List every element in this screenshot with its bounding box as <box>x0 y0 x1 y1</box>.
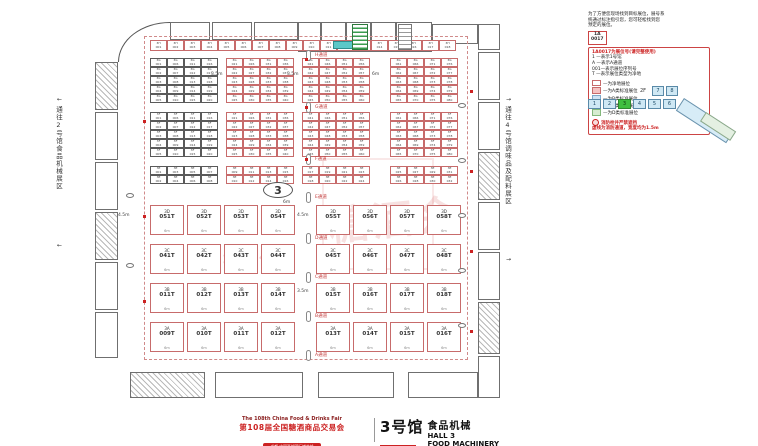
booth[interactable]: 3F072 <box>424 121 441 130</box>
booth[interactable]: 3F017 <box>201 121 218 130</box>
booth[interactable]: 3A011T6m <box>224 322 258 352</box>
dimension-label: 3.5m <box>297 289 309 294</box>
fire-hydrant-marker <box>470 250 473 253</box>
footer: The 108th China Food & Drinks Fair 第108届… <box>214 416 514 444</box>
booth[interactable]: 3F048 <box>319 130 336 139</box>
booth[interactable]: 3F075 <box>424 148 441 157</box>
booth[interactable]: 3D055T6m <box>316 205 350 235</box>
booth[interactable]: 3F008 <box>167 130 184 139</box>
booth[interactable]: 3F057 <box>353 121 370 130</box>
booth[interactable]: 3F073 <box>424 130 441 139</box>
booth[interactable]: 3B011T6m <box>150 283 184 313</box>
booth[interactable]: 3F055 <box>336 148 353 157</box>
booth[interactable]: 3A016T6m <box>427 322 461 352</box>
booth[interactable]: 3F028 <box>243 130 260 139</box>
wall-room <box>478 52 500 100</box>
booth[interactable]: 3G031 <box>260 58 277 67</box>
booth[interactable]: 3G062 <box>390 67 407 76</box>
booth[interactable]: 3G032 <box>260 67 277 76</box>
booth[interactable]: 3F018 <box>201 130 218 139</box>
booth[interactable]: 3G002 <box>150 67 167 76</box>
booth[interactable]: 3G078 <box>441 76 458 85</box>
booth[interactable]: 3C045T6m <box>316 244 350 274</box>
booth[interactable]: 3G033 <box>260 76 277 85</box>
wall-room <box>478 302 500 354</box>
booth[interactable]: 3G019 <box>201 85 218 94</box>
booth[interactable]: 3F013 <box>184 130 201 139</box>
booth[interactable]: 3F007 <box>167 121 184 130</box>
booth[interactable]: 3G024 <box>226 85 243 94</box>
booth[interactable]: 3F069 <box>407 139 424 148</box>
aisle-label: E通道 <box>315 194 327 200</box>
booth[interactable]: 3G071 <box>424 58 441 67</box>
booth[interactable]: 3A015T6m <box>390 322 424 352</box>
fire-hydrant-marker <box>305 58 308 61</box>
booth[interactable]: 3G009 <box>167 85 184 94</box>
booth[interactable]: 3G058 <box>353 76 370 85</box>
booth[interactable]: 3F022 <box>226 121 243 130</box>
left-arrow-top-icon: ← <box>57 96 62 103</box>
column-marker <box>458 213 466 218</box>
booth[interactable]: 3G054 <box>336 85 353 94</box>
aisle-label: B通道 <box>315 313 327 319</box>
booth[interactable]: 3D058T6m <box>427 205 461 235</box>
wall-room <box>95 62 118 110</box>
booth[interactable]: 3E028 <box>407 175 424 184</box>
booth[interactable]: 3A009T6m <box>150 322 184 352</box>
booth[interactable]: 3G004 <box>150 85 167 94</box>
booth[interactable]: 3G003 <box>150 76 167 85</box>
booth[interactable]: 3F031 <box>260 112 277 121</box>
booth[interactable]: 3F039 <box>277 139 294 148</box>
booth[interactable]: 3F066 <box>407 112 424 121</box>
aisle-label: A通道 <box>315 352 327 358</box>
booth[interactable]: 3G022 <box>226 67 243 76</box>
hall-number: 3 <box>274 184 282 197</box>
booth[interactable]: 3G063 <box>390 76 407 85</box>
fire-hydrant-marker <box>143 300 146 303</box>
booth[interactable]: 3C048T6m <box>427 244 461 274</box>
booth[interactable]: 3H010 <box>303 40 320 51</box>
booth[interactable]: 3G014 <box>184 85 201 94</box>
booth[interactable]: 3D052T6m <box>187 205 221 235</box>
booth[interactable]: 3G018 <box>201 76 218 85</box>
booth[interactable]: 3E001 <box>150 166 167 175</box>
booth[interactable]: 3E015 <box>277 166 294 175</box>
booth[interactable]: 3C042T6m <box>187 244 221 274</box>
fire-hydrant-marker <box>305 158 308 161</box>
booth[interactable]: 3F001 <box>150 112 167 121</box>
booth[interactable]: 3F038 <box>277 130 294 139</box>
booth[interactable]: 3C047T6m <box>390 244 424 274</box>
left-corridor-label: 通往2号馆食品机械展区 <box>55 106 62 190</box>
booth[interactable]: 3E030 <box>424 175 441 184</box>
booth[interactable]: 3G048 <box>319 76 336 85</box>
booth[interactable]: 3F037 <box>277 121 294 130</box>
booth[interactable]: 3G070 <box>407 94 424 103</box>
booth[interactable]: 3E024 <box>353 175 370 184</box>
dimension-label: 3.5m <box>211 72 223 77</box>
booth[interactable]: 3F009 <box>167 139 184 148</box>
booth[interactable]: 3G039 <box>277 85 294 94</box>
booth[interactable]: 3G044 <box>302 85 319 94</box>
booth[interactable]: 3E007 <box>201 166 218 175</box>
booth[interactable]: 3F049 <box>319 139 336 148</box>
booth[interactable]: 3G053 <box>336 76 353 85</box>
hall-title-en: HALL 3 <box>427 432 499 440</box>
booth[interactable]: 3F030 <box>243 148 260 157</box>
booth[interactable]: 3G036 <box>277 58 294 67</box>
aisle-marker <box>306 192 311 203</box>
booth[interactable]: 3F063 <box>390 130 407 139</box>
booth[interactable]: 3E022 <box>336 175 353 184</box>
booth[interactable]: 3G057 <box>353 67 370 76</box>
right-corridor-label: 通往4号馆调味品及配料展区 <box>504 106 511 205</box>
booth[interactable]: 3H007 <box>252 40 269 51</box>
booth[interactable]: 3E032 <box>441 175 458 184</box>
booth[interactable]: 3A010T6m <box>187 322 221 352</box>
minimap-tab-hall-5[interactable]: 5 <box>648 99 661 109</box>
booth[interactable]: 3F033 <box>260 130 277 139</box>
booth[interactable]: 3G055 <box>336 94 353 103</box>
booth[interactable]: 3F060 <box>353 148 370 157</box>
booth[interactable]: 3D056T6m <box>353 205 387 235</box>
booth[interactable]: 3F062 <box>390 121 407 130</box>
booth[interactable]: 3H006 <box>235 40 252 51</box>
booth[interactable]: 3E002 <box>150 175 167 184</box>
wall-room <box>478 202 500 250</box>
booth[interactable]: 3F044 <box>302 139 319 148</box>
booth[interactable]: 3G011 <box>184 58 201 67</box>
legend-code-line: T —表示展位类型为净地 <box>592 72 706 78</box>
booth[interactable]: 3F058 <box>353 130 370 139</box>
wall-room <box>130 372 205 398</box>
booth[interactable]: 3G021 <box>226 58 243 67</box>
booth[interactable]: 3F036 <box>277 112 294 121</box>
minimap-tab-hall-1[interactable]: 1 <box>588 99 601 109</box>
booth[interactable]: 3B016T6m <box>353 283 387 313</box>
booth[interactable]: 3F046 <box>319 112 336 121</box>
booth[interactable]: 3F005 <box>150 148 167 157</box>
booth[interactable]: 3F041 <box>302 112 319 121</box>
booth[interactable]: 3G026 <box>243 58 260 67</box>
booth[interactable]: 3E004 <box>167 175 184 184</box>
booth[interactable]: 3E027 <box>407 166 424 175</box>
booth[interactable]: 3F068 <box>407 130 424 139</box>
booth[interactable]: 3F080 <box>441 148 458 157</box>
booth[interactable]: 3F061 <box>390 112 407 121</box>
booth[interactable]: 3F011 <box>184 112 201 121</box>
booth[interactable]: 3F010 <box>167 148 184 157</box>
booth[interactable]: 3G043 <box>302 76 319 85</box>
booth[interactable]: 3E018 <box>302 175 319 184</box>
booth[interactable]: 3F024 <box>226 139 243 148</box>
booth[interactable]: 3F056 <box>353 112 370 121</box>
booth[interactable]: 3F065 <box>390 148 407 157</box>
booth[interactable]: 3H018 <box>439 40 456 51</box>
booth[interactable]: 3E031 <box>441 166 458 175</box>
booth[interactable]: 3G023 <box>226 76 243 85</box>
booth[interactable]: 3F034 <box>260 139 277 148</box>
booth[interactable]: 3G072 <box>424 67 441 76</box>
booth[interactable]: 3F076 <box>441 112 458 121</box>
hall-category: 食品机械 <box>427 417 499 432</box>
booth[interactable]: 3G064 <box>390 85 407 94</box>
booth[interactable]: 3G068 <box>407 76 424 85</box>
floor-plan-page: 糖酒会 净地展位图 3H0013H0023H0033H0043H0053H006… <box>0 0 758 446</box>
wall-room <box>318 372 394 398</box>
booth[interactable]: 3F064 <box>390 139 407 148</box>
booth[interactable]: 3G005 <box>150 94 167 103</box>
booth[interactable]: 3G052 <box>336 67 353 76</box>
aisle-label: C通道 <box>315 274 327 280</box>
fire-hydrant-marker <box>143 215 146 218</box>
fire-hydrant-marker <box>470 90 473 93</box>
booth[interactable]: 3G027 <box>243 67 260 76</box>
booth[interactable]: 3G075 <box>424 94 441 103</box>
wall-room <box>95 162 118 210</box>
dimension-label: 6m <box>283 200 290 205</box>
booth[interactable]: 3F077 <box>441 121 458 130</box>
booth[interactable]: 3C041T6m <box>150 244 184 274</box>
booth[interactable]: 3G045 <box>302 94 319 103</box>
aisle-label: G通道 <box>315 104 328 110</box>
booth[interactable]: 3H008 <box>269 40 286 51</box>
booth[interactable]: 3F051 <box>336 112 353 121</box>
booth[interactable]: 3G049 <box>319 85 336 94</box>
booth[interactable]: 3F015 <box>184 148 201 157</box>
minimap-tab-hall-6[interactable]: 6 <box>663 99 676 109</box>
booth[interactable]: 3F004 <box>150 139 167 148</box>
wall-room <box>478 24 500 50</box>
booth[interactable]: 3H005 <box>218 40 235 51</box>
booth[interactable]: 3G006 <box>167 58 184 67</box>
booth[interactable]: 3G056 <box>353 58 370 67</box>
booth[interactable]: 3G077 <box>441 67 458 76</box>
stairs-icon <box>398 24 412 50</box>
minimap-floor2-label: 2F <box>640 88 646 94</box>
aisle-label: D通道 <box>315 235 327 241</box>
booth[interactable]: 3G029 <box>243 85 260 94</box>
booth[interactable]: 3G001 <box>150 58 167 67</box>
booth[interactable]: 3E003 <box>167 166 184 175</box>
booth[interactable]: 3E021 <box>336 166 353 175</box>
booth[interactable]: 3F047 <box>319 121 336 130</box>
booth[interactable]: 3G010 <box>167 94 184 103</box>
booth[interactable]: 3F021 <box>226 112 243 121</box>
column-marker <box>458 103 466 108</box>
booth[interactable]: 3F003 <box>150 130 167 139</box>
booth[interactable]: 3G025 <box>226 94 243 103</box>
dimension-label: 4.5m <box>297 213 309 218</box>
aisle-marker <box>306 272 311 283</box>
booth[interactable]: 3G015 <box>184 94 201 103</box>
booth[interactable]: 3F032 <box>260 121 277 130</box>
info-counter <box>333 41 353 49</box>
booth[interactable]: 3H003 <box>184 40 201 51</box>
booth[interactable]: 3F042 <box>302 121 319 130</box>
wall-room <box>478 152 500 200</box>
booth[interactable]: 3B018T6m <box>427 283 461 313</box>
booth[interactable]: 3A012T6m <box>261 322 295 352</box>
aisle-label: H通道 <box>315 52 327 58</box>
booth[interactable]: 3H017 <box>422 40 439 51</box>
booth[interactable]: 3G061 <box>390 58 407 67</box>
aisle-marker <box>306 350 311 361</box>
booth[interactable]: 3G030 <box>243 94 260 103</box>
booth[interactable]: 3D053T6m <box>224 205 258 235</box>
booth[interactable]: 3E010 <box>226 175 243 184</box>
booth[interactable]: 3C043T6m <box>224 244 258 274</box>
booth[interactable]: 3G069 <box>407 85 424 94</box>
booth[interactable]: 3C044T6m <box>261 244 295 274</box>
booth[interactable]: 3G060 <box>353 94 370 103</box>
booth[interactable]: 3F053 <box>336 130 353 139</box>
booth[interactable]: 3F070 <box>407 148 424 157</box>
wall-room <box>95 262 118 310</box>
booth[interactable]: 3F023 <box>226 130 243 139</box>
dimension-label: 3.5m <box>287 72 299 77</box>
booth[interactable]: 3D057T6m <box>390 205 424 235</box>
fire-hydrant-marker <box>305 106 308 109</box>
booth[interactable]: 3G073 <box>424 76 441 85</box>
booth[interactable]: 3E020 <box>319 175 336 184</box>
minimap-tab-hall-7[interactable]: 7 <box>652 86 664 96</box>
booth[interactable]: 3F074 <box>424 139 441 148</box>
booth[interactable]: 3E029 <box>424 166 441 175</box>
booth[interactable]: 3G035 <box>260 94 277 103</box>
legend-intro-line3: 预定的展位。 <box>588 23 710 29</box>
booth[interactable]: 3D051T6m <box>150 205 184 235</box>
booth[interactable]: 3G076 <box>441 58 458 67</box>
hall-title-cn: 3号馆 <box>380 416 423 437</box>
wall-room <box>95 212 118 260</box>
booth[interactable]: 3G051 <box>336 58 353 67</box>
booth[interactable]: 3F035 <box>260 148 277 157</box>
booth[interactable]: 3G020 <box>201 94 218 103</box>
booth[interactable]: 3F059 <box>353 139 370 148</box>
right-arrow-top-icon: → <box>506 96 511 103</box>
booth[interactable]: 3E025 <box>390 166 407 175</box>
booth[interactable]: 3B012T6m <box>187 283 221 313</box>
booth[interactable]: 3F054 <box>336 139 353 148</box>
minimap: 2F 78 123456 <box>588 86 753 146</box>
booth[interactable]: 3H001 <box>150 40 167 51</box>
column-marker <box>458 158 466 163</box>
booth[interactable]: 3F002 <box>150 121 167 130</box>
booth[interactable]: 3F027 <box>243 121 260 130</box>
footer-divider <box>374 418 375 442</box>
booth[interactable]: 3F029 <box>243 139 260 148</box>
booth[interactable]: 3E026 <box>390 175 407 184</box>
booth[interactable]: 3A014T6m <box>353 322 387 352</box>
booth[interactable]: 3G079 <box>441 85 458 94</box>
booth[interactable]: 3E005 <box>184 166 201 175</box>
booth[interactable]: 3E019 <box>319 166 336 175</box>
wall-room <box>95 112 118 160</box>
booth[interactable]: 3E013 <box>260 166 277 175</box>
booth[interactable]: 3F019 <box>201 139 218 148</box>
booth[interactable]: 3G047 <box>319 67 336 76</box>
booth[interactable]: 3F071 <box>424 112 441 121</box>
hall-title-en2: FOOD MACHINERY <box>427 440 499 446</box>
booth[interactable]: 3B014T6m <box>261 283 295 313</box>
booth[interactable]: 3F040 <box>277 148 294 157</box>
booth[interactable]: 3F026 <box>243 112 260 121</box>
booth[interactable]: 3F043 <box>302 130 319 139</box>
booth[interactable]: 3E008 <box>201 175 218 184</box>
booth[interactable]: 3F020 <box>201 148 218 157</box>
booth[interactable]: 3C046T6m <box>353 244 387 274</box>
booth[interactable]: 3G012 <box>184 67 201 76</box>
booth[interactable]: 3F016 <box>201 112 218 121</box>
booth[interactable]: 3H014 <box>371 40 388 51</box>
booth[interactable]: 3F078 <box>441 130 458 139</box>
booth[interactable]: 3E023 <box>353 166 370 175</box>
booth[interactable]: 3B017T6m <box>390 283 424 313</box>
booth[interactable]: 3G042 <box>302 67 319 76</box>
booth[interactable]: 3G028 <box>243 76 260 85</box>
booth[interactable]: 3G066 <box>407 58 424 67</box>
minimap-tab-hall-8[interactable]: 8 <box>666 86 678 96</box>
left-arrow-bottom-icon: ← <box>57 242 62 249</box>
booth[interactable]: 3G065 <box>390 94 407 103</box>
minimap-tab-hall-3[interactable]: 3 <box>618 99 631 109</box>
booth[interactable]: 3G074 <box>424 85 441 94</box>
minimap-tab-hall-4[interactable]: 4 <box>633 99 646 109</box>
booth[interactable]: 3G038 <box>277 76 294 85</box>
booth[interactable]: 3G040 <box>277 94 294 103</box>
booth[interactable]: 3B013T6m <box>224 283 258 313</box>
minimap-tab-hall-2[interactable]: 2 <box>603 99 616 109</box>
booth[interactable]: 3E009 <box>226 166 243 175</box>
sample-booth-bottom: 0017 <box>591 37 604 42</box>
booth[interactable]: 3G050 <box>319 94 336 103</box>
booth[interactable]: 3F014 <box>184 139 201 148</box>
booth[interactable]: 3E017 <box>302 166 319 175</box>
booth[interactable]: 3F006 <box>167 112 184 121</box>
booth[interactable]: 3E012 <box>243 175 260 184</box>
booth[interactable]: 3E011 <box>243 166 260 175</box>
booth[interactable]: 3D054T6m <box>261 205 295 235</box>
booth[interactable]: 3H009 <box>286 40 303 51</box>
booth[interactable]: 3F067 <box>407 121 424 130</box>
column-marker <box>458 268 466 273</box>
fair-title-cn: 第108届全国糖酒商品交易会 <box>214 422 370 433</box>
booth[interactable]: 3G080 <box>441 94 458 103</box>
booth[interactable]: 3H004 <box>201 40 218 51</box>
fire-hydrant-marker <box>470 170 473 173</box>
booth[interactable]: 3F012 <box>184 121 201 130</box>
booth[interactable]: 3G008 <box>167 76 184 85</box>
booth[interactable]: 3E006 <box>184 175 201 184</box>
right-arrow-bottom-icon: → <box>506 256 511 263</box>
booth[interactable]: 3B015T6m <box>316 283 350 313</box>
booth[interactable]: 3F052 <box>336 121 353 130</box>
booth[interactable]: 3G034 <box>260 85 277 94</box>
booth[interactable]: 3F079 <box>441 139 458 148</box>
booth[interactable]: 3F025 <box>226 148 243 157</box>
booth[interactable]: 3G007 <box>167 67 184 76</box>
booth[interactable]: 3G016 <box>201 58 218 67</box>
booth[interactable]: 3G013 <box>184 76 201 85</box>
booth[interactable]: 3A013T6m <box>316 322 350 352</box>
booth[interactable]: 3G059 <box>353 85 370 94</box>
booth[interactable]: 3G046 <box>319 58 336 67</box>
booth[interactable]: 3G067 <box>407 67 424 76</box>
wall-room <box>95 312 118 358</box>
booth[interactable]: 3H002 <box>167 40 184 51</box>
